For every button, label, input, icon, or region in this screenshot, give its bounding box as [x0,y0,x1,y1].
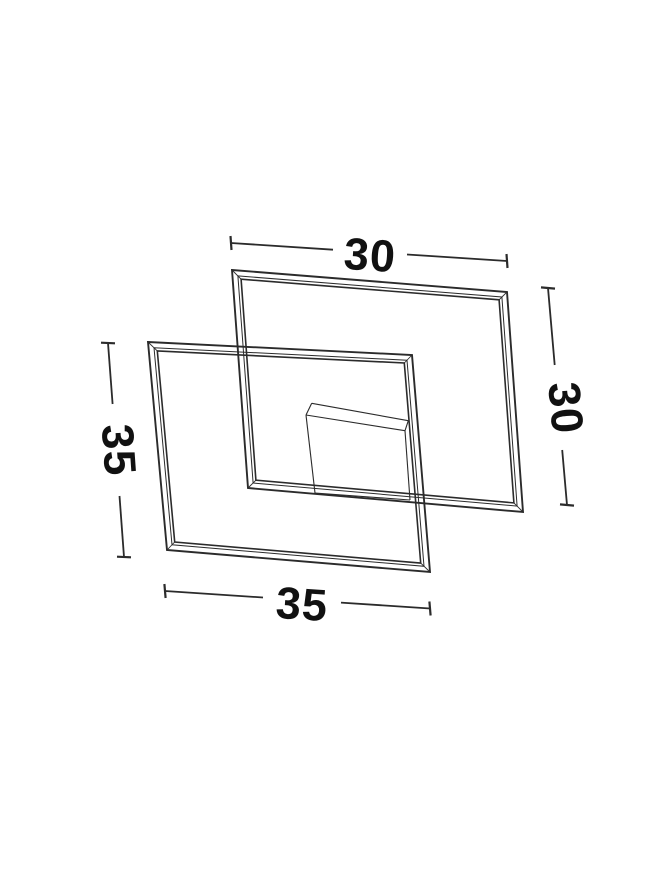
canopy-top-right-edge [405,421,408,431]
frame-35-miter-bottom-left [167,542,175,550]
dim-left-tick-bottom [117,557,131,558]
frame-35-wireframe [148,342,430,572]
dim-left-tick-top [101,343,115,344]
dim-top-tick-right [507,254,508,268]
dim-left-label: 35 [92,422,147,477]
frame-30-miter-top-right [499,292,507,300]
frame-30-outer-edge [232,270,523,512]
dim-bottom-label: 35 [274,577,329,631]
frame-30-mid-edge [238,276,517,506]
dim-left-line-bottom [120,496,125,557]
frame-30-inner-edge [241,279,514,503]
dim-labels: 30 30 35 35 [92,228,594,631]
dim-right-line-top [548,288,555,365]
dim-right-line-bottom [562,450,567,505]
dim-top-label: 30 [342,228,397,282]
frame-35-outer-edge [148,342,430,572]
frame-30-wireframe [232,270,523,512]
dim-right-label: 30 [538,380,593,436]
frame-30-miter-bottom-left [248,480,256,488]
diagram-canvas: 30 30 35 35 [0,0,667,879]
canopy-top-left-edge [306,403,312,415]
canopy-front-left-edge [306,415,315,493]
dim-left-line-top [108,343,113,404]
dim-bottom-tick-left [164,584,165,598]
dim-bottom-line-right [341,603,430,609]
dim-bottom-line-left [165,591,263,598]
frame-35-mid-edge [154,348,424,567]
dim-top-tick-left [231,236,232,250]
dim-right-tick-bottom [560,504,574,505]
dim-top-line-right [407,255,507,262]
dim-top-line-left [231,243,333,250]
frame-35-inner-edge [157,351,420,563]
canopy-front-bottom-edge [315,493,410,500]
product-dimension-diagram: 30 30 35 35 [0,0,667,879]
frame-35-miter-top-right [404,355,412,363]
dim-bottom-tick-right [429,602,430,616]
canopy-front-right-edge [405,431,410,500]
dim-right-tick-top [541,287,555,288]
